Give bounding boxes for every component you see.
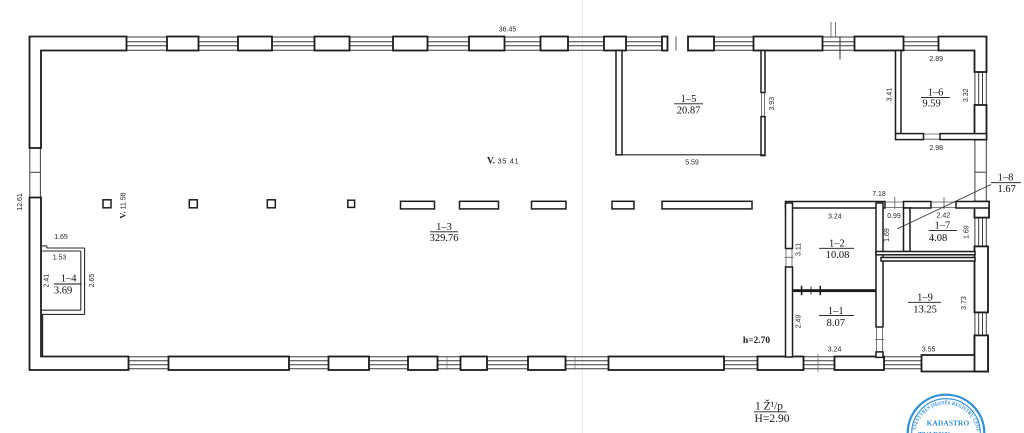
svg-text:2.98: 2.98	[929, 145, 943, 152]
svg-text:2.49: 2.49	[796, 315, 803, 329]
svg-text:1.67: 1.67	[998, 184, 1016, 195]
svg-text:3.32: 3.32	[963, 88, 970, 102]
svg-text:H=2.90: H=2.90	[755, 413, 790, 425]
svg-text:1–5: 1–5	[681, 94, 697, 105]
svg-text:2.89: 2.89	[929, 56, 943, 63]
svg-text:1.69: 1.69	[964, 225, 971, 239]
svg-text:329.76: 329.76	[430, 233, 459, 244]
svg-text:9.59: 9.59	[922, 99, 940, 110]
svg-text:1–4: 1–4	[61, 274, 78, 285]
svg-text:1.69: 1.69	[884, 228, 891, 242]
svg-text:8.07: 8.07	[827, 318, 845, 329]
svg-text:3.24: 3.24	[828, 214, 842, 221]
svg-text:2.41: 2.41	[44, 274, 51, 288]
svg-text:1.65: 1.65	[54, 234, 68, 241]
svg-text:V.: V.	[487, 157, 495, 167]
svg-text:3.69: 3.69	[54, 286, 72, 297]
svg-text:3.93: 3.93	[769, 97, 776, 111]
svg-text:h=2.70: h=2.70	[743, 336, 771, 346]
svg-text:12.61: 12.61	[17, 193, 24, 211]
svg-text:3.73: 3.73	[961, 296, 968, 310]
svg-text:20.87: 20.87	[677, 105, 701, 116]
svg-text:1–7: 1–7	[935, 221, 951, 232]
svg-text:10.08: 10.08	[826, 250, 850, 261]
svg-text:1.53: 1.53	[53, 255, 67, 262]
svg-text:2.65: 2.65	[89, 274, 96, 288]
svg-text:1 Ž¹/p: 1 Ž¹/p	[755, 399, 783, 413]
svg-text:35.41: 35.41	[498, 157, 520, 166]
svg-text:3.24: 3.24	[828, 347, 842, 354]
svg-text:2.42: 2.42	[936, 213, 950, 220]
svg-text:1–8: 1–8	[998, 173, 1014, 184]
svg-text:36.45: 36.45	[499, 27, 517, 34]
svg-text:7.18: 7.18	[872, 191, 886, 198]
svg-text:4.08: 4.08	[929, 233, 947, 244]
svg-text:5.59: 5.59	[685, 160, 699, 167]
svg-text:1–6: 1–6	[928, 88, 944, 99]
svg-text:13.25: 13.25	[913, 305, 937, 316]
svg-text:KADASTRO: KADASTRO	[927, 418, 970, 427]
svg-text:0.99: 0.99	[887, 213, 901, 220]
svg-text:3.11: 3.11	[795, 243, 802, 256]
svg-text:3.41: 3.41	[887, 88, 894, 102]
svg-text:3.55: 3.55	[922, 347, 936, 354]
